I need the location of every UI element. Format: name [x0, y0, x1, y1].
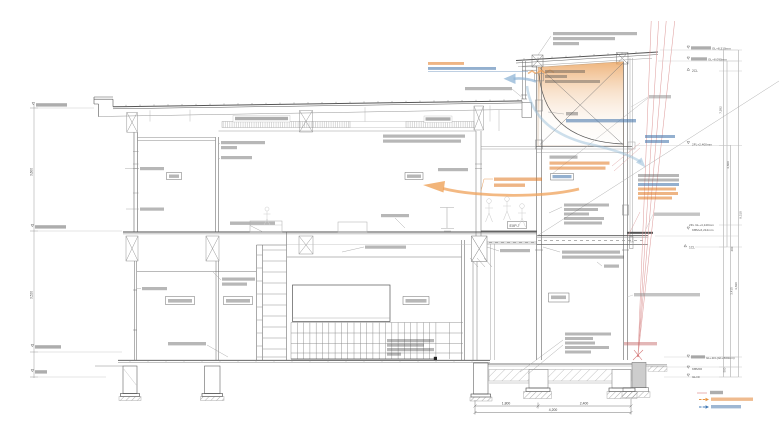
svg-text:3,415: 3,415 — [730, 287, 734, 295]
svg-text:EXP.J: EXP.J — [510, 224, 520, 228]
svg-text:KBM±0: KBM±0 — [692, 367, 702, 371]
svg-text:3,690: 3,690 — [734, 282, 738, 290]
svg-text:1,800: 1,800 — [502, 402, 511, 406]
svg-text:1CL: 1CL — [689, 246, 695, 250]
svg-text:2FL GL+4,140mm: 2FL GL+4,140mm — [689, 223, 714, 227]
svg-text:GL+8,090mm: GL+8,090mm — [708, 58, 727, 62]
svg-text:200: 200 — [730, 246, 734, 251]
svg-text:3,520: 3,520 — [30, 291, 34, 299]
svg-text:9,310: 9,310 — [739, 211, 743, 219]
svg-text:2FL+2,400mm: 2FL+2,400mm — [692, 143, 712, 147]
svg-text:4,600: 4,600 — [726, 161, 730, 169]
svg-text:GL±0: GL±0 — [692, 375, 700, 379]
svg-text:2,400: 2,400 — [580, 402, 589, 406]
svg-text:7,282: 7,282 — [719, 106, 723, 114]
svg-text:GL+8,310mm: GL+8,310mm — [712, 47, 731, 51]
svg-text:3,600: 3,600 — [30, 168, 34, 176]
svg-text:4,200: 4,200 — [549, 408, 558, 412]
svg-text:KBM+6,212mm: KBM+6,212mm — [692, 228, 714, 232]
svg-text:500: 500 — [723, 367, 727, 372]
svg-text:2CL: 2CL — [692, 69, 698, 73]
svg-text:GL+1FL(GL+500mm): GL+1FL(GL+500mm) — [706, 356, 735, 360]
